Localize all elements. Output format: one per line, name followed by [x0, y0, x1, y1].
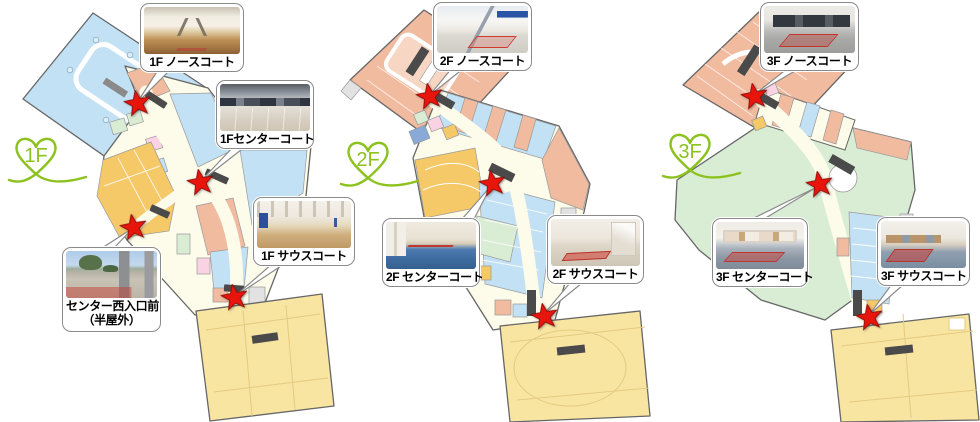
- callout-label: センター西入口前: [66, 298, 157, 314]
- callout-label: 2F ノースコート: [437, 53, 528, 69]
- court-photo-2f-center: [386, 222, 476, 269]
- star-icon: [185, 167, 216, 198]
- callout-label: 2F サウスコート: [551, 266, 640, 282]
- star-marker-2f-center[interactable]: [477, 168, 508, 199]
- floor-logo-label: 3F: [678, 141, 701, 163]
- star-icon: [804, 169, 835, 200]
- callout-2f-south-court[interactable]: 2F サウスコート: [547, 215, 644, 284]
- callout-label: 1F ノースコート: [144, 54, 240, 70]
- star-icon: [219, 282, 250, 313]
- callout-label: 3F サウスコート: [881, 268, 966, 284]
- callout-3f-north-court[interactable]: 3F ノースコート: [760, 2, 859, 71]
- callout-1f-north-court[interactable]: 1F ノースコート: [140, 3, 244, 72]
- court-photo-1f-north: [144, 7, 240, 54]
- star-icon: [529, 301, 560, 332]
- court-photo-3f-center: [716, 222, 804, 269]
- court-photo-3f-south: [881, 221, 966, 268]
- floor-logo-label: 2F: [356, 149, 379, 171]
- star-marker-1f-west-entrance[interactable]: [118, 212, 149, 243]
- star-marker-3f-center[interactable]: [804, 169, 835, 200]
- floor-logo-label: 1F: [24, 145, 47, 167]
- callout-label: 3F ノースコート: [764, 53, 855, 69]
- star-icon: [739, 81, 770, 112]
- callout-2f-center-court[interactable]: 2F センターコート: [382, 218, 480, 287]
- callout-label: 1Fセンターコート: [220, 131, 310, 147]
- star-icon: [854, 302, 885, 333]
- star-marker-3f-south[interactable]: [854, 302, 885, 333]
- callout-1f-west-entrance[interactable]: センター西入口前 （半屋外）: [62, 247, 161, 332]
- court-photo-3f-north: [764, 6, 855, 53]
- court-photo-2f-south: [551, 219, 640, 266]
- star-marker-1f-south[interactable]: [219, 282, 250, 313]
- floor-logo-3f: 3F: [660, 130, 744, 189]
- star-marker-1f-north[interactable]: [122, 88, 153, 119]
- star-icon: [477, 168, 508, 199]
- callout-label: 1F サウスコート: [257, 248, 351, 264]
- callout-1f-center-court[interactable]: 1Fセンターコート: [216, 80, 314, 149]
- star-marker-3f-north[interactable]: [739, 81, 770, 112]
- star-icon: [122, 88, 153, 119]
- court-photo-2f-north: [437, 6, 528, 53]
- star-marker-2f-north[interactable]: [414, 81, 445, 112]
- court-photo-1f-center: [220, 84, 310, 131]
- star-marker-2f-south[interactable]: [529, 301, 560, 332]
- star-icon: [414, 81, 445, 112]
- floor-logo-2f: 2F: [338, 138, 422, 197]
- callout-3f-center-court[interactable]: 3F センターコート: [712, 218, 808, 287]
- court-photo-1f-south: [257, 201, 351, 248]
- floor-logo-1f: 1F: [6, 134, 90, 193]
- callout-2f-north-court[interactable]: 2F ノースコート: [433, 2, 532, 71]
- court-photo-1f-west-entrance: [66, 251, 157, 298]
- star-marker-1f-center[interactable]: [185, 167, 216, 198]
- callout-label: 2F センターコート: [386, 269, 476, 285]
- callout-label: 3F センターコート: [716, 269, 804, 285]
- callout-3f-south-court[interactable]: 3F サウスコート: [877, 217, 970, 286]
- callout-label-line2: （半屋外）: [66, 314, 157, 330]
- callout-1f-south-court[interactable]: 1F サウスコート: [253, 197, 355, 266]
- mall-floor-guide: 1F 2F 3F 1F ノースコート 1Fセンターコート: [0, 0, 980, 422]
- star-icon: [118, 212, 149, 243]
